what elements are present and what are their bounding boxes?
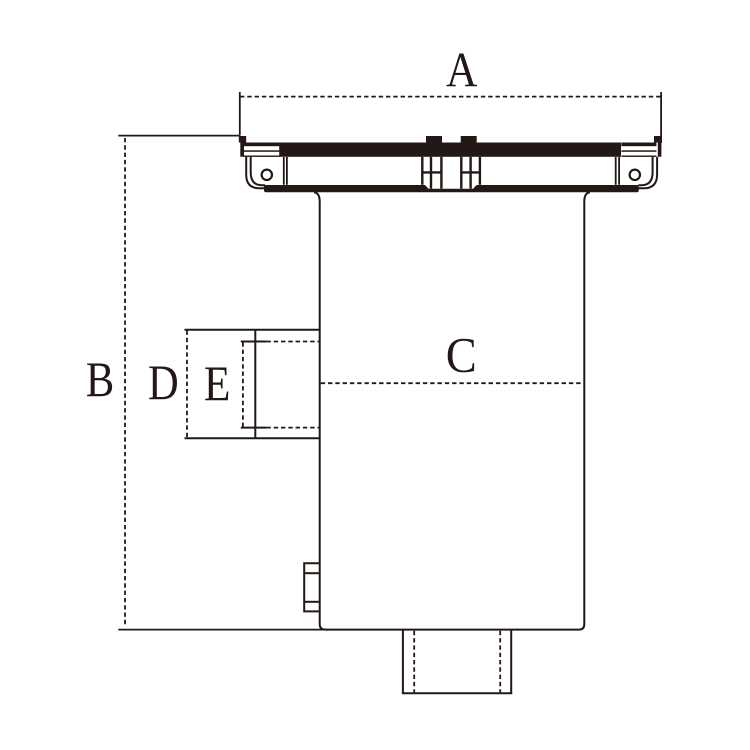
svg-text:A: A (446, 43, 478, 98)
svg-text:D: D (148, 356, 179, 411)
svg-text:C: C (446, 328, 477, 383)
svg-text:B: B (86, 353, 114, 408)
svg-text:E: E (204, 356, 231, 411)
